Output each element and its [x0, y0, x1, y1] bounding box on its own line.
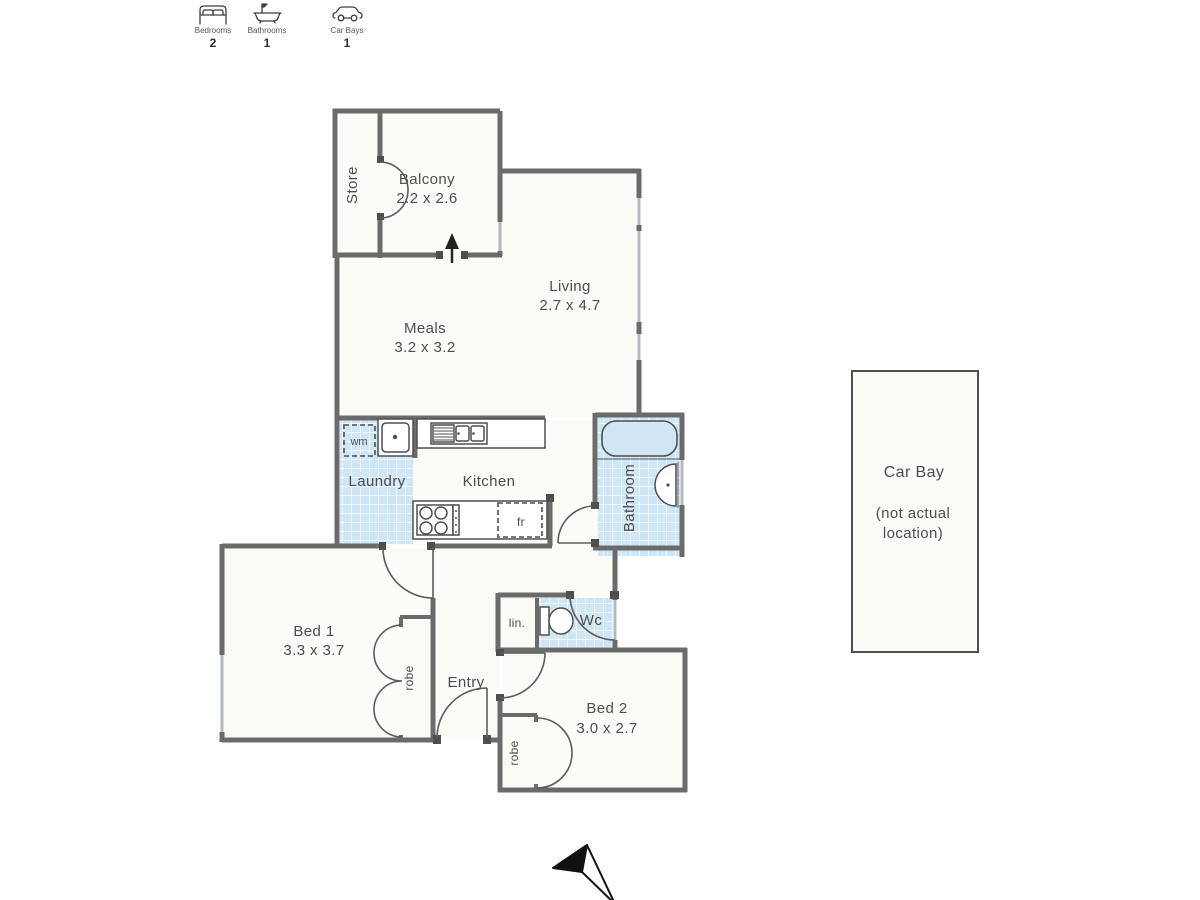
meals-label: Meals: [404, 320, 446, 337]
kitchen-label: Kitchen: [463, 473, 516, 490]
laundry-label: Laundry: [348, 473, 405, 490]
bathroom-label: Bathroom: [621, 464, 638, 532]
carbays-value: 1: [344, 36, 351, 50]
bed-icon: [200, 6, 226, 24]
car-icon: [333, 7, 362, 21]
living-label: Living: [549, 278, 591, 295]
bathrooms-value: 1: [264, 36, 271, 50]
bed1-dims: 3.3 x 3.7: [283, 642, 344, 659]
linen-label: lin.: [509, 616, 526, 630]
toilet: [540, 607, 573, 635]
car-bay-title: Car Bay: [884, 464, 945, 481]
car-bay-box: Car Bay (not actual location): [852, 371, 978, 652]
bathrooms-label: Bathrooms: [248, 26, 287, 35]
living-dims: 2.7 x 4.7: [539, 297, 600, 314]
carbays-label: Car Bays: [331, 26, 364, 35]
summary-bar: Bedrooms 2 Bathrooms 1 Car Bays 1: [195, 4, 364, 50]
store-label: Store: [344, 166, 361, 204]
bath-icon: [254, 4, 281, 23]
robe1-label: robe: [402, 665, 416, 690]
laundry-trough: [378, 419, 413, 456]
bedrooms-value: 2: [210, 36, 217, 50]
balcony-label: Balcony: [399, 171, 455, 188]
washing-machine-label: wm: [349, 436, 367, 448]
entry-label: Entry: [447, 674, 484, 691]
floorplan-page: Bedrooms 2 Bathrooms 1 Car Bays 1: [0, 0, 1200, 900]
robe2-label: robe: [507, 740, 521, 765]
bedrooms-label: Bedrooms: [195, 26, 231, 35]
north-arrow: [553, 845, 615, 900]
wc-label: Wc: [580, 612, 603, 629]
floorplan-svg: Bedrooms 2 Bathrooms 1 Car Bays 1: [0, 0, 1200, 900]
car-bay-note-1: (not actual: [876, 505, 950, 522]
bed2-label: Bed 2: [586, 700, 627, 717]
bathtub: [597, 421, 680, 459]
bed1-label: Bed 1: [293, 623, 334, 640]
balcony-dims: 2.2 x 2.6: [396, 190, 457, 207]
car-bay-note-2: location): [883, 525, 943, 542]
kitchen-sink: [431, 423, 487, 444]
fridge-label: fr: [517, 515, 525, 529]
meals-dims: 3.2 x 3.2: [394, 339, 455, 356]
cooktop: [413, 501, 547, 539]
bed2-dims: 3.0 x 2.7: [576, 720, 637, 737]
